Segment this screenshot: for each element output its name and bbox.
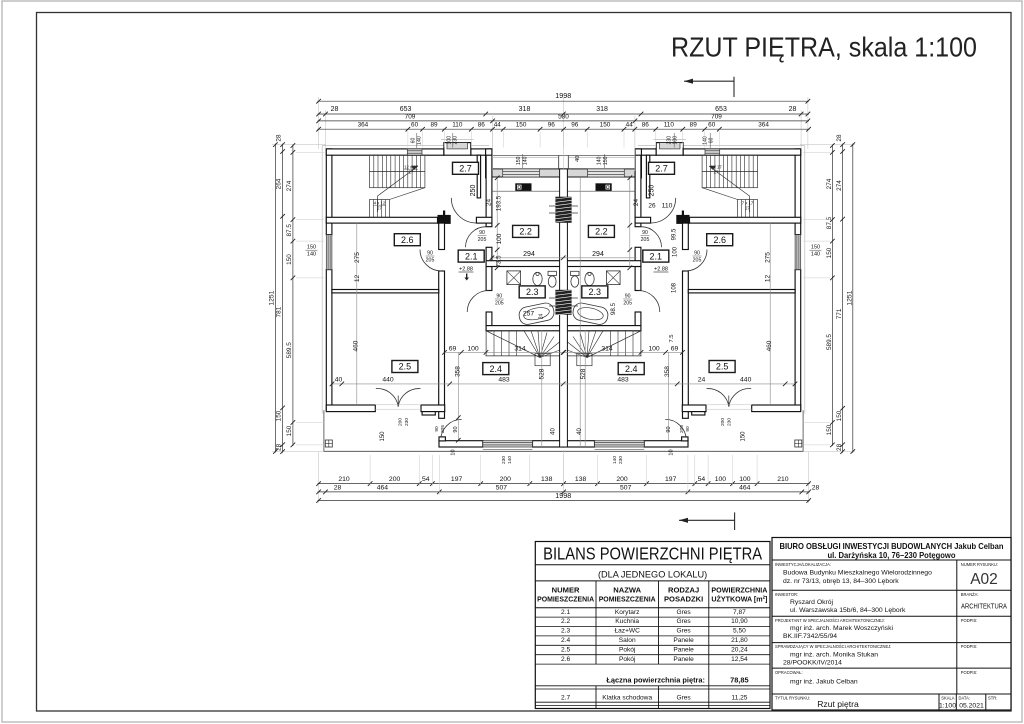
svg-text:05.2021: 05.2021 <box>959 703 984 710</box>
svg-text:2.3: 2.3 <box>526 287 539 297</box>
svg-text:11,25: 11,25 <box>731 694 747 701</box>
svg-text:150: 150 <box>603 156 609 165</box>
svg-text:87.5: 87.5 <box>286 224 293 237</box>
svg-text:ul. Darżyńska 10, 76–230 Potęg: ul. Darżyńska 10, 76–230 Potęgowo <box>828 551 956 560</box>
svg-text:709: 709 <box>711 113 722 120</box>
svg-text:POSADZKI: POSADZKI <box>664 595 703 604</box>
svg-text:BK.IIF.7342/55/94: BK.IIF.7342/55/94 <box>783 633 837 640</box>
svg-text:1:100: 1:100 <box>939 703 956 710</box>
svg-text:771: 771 <box>836 308 843 319</box>
svg-text:108: 108 <box>672 282 678 293</box>
svg-text:69: 69 <box>449 345 457 352</box>
svg-text:dz. nr 73/13, obręb 13, 84–300: dz. nr 73/13, obręb 13, 84–300 Lębork <box>783 578 899 585</box>
svg-text:Pokój: Pokój <box>619 656 636 663</box>
svg-text:24: 24 <box>698 377 706 384</box>
svg-text:2.3: 2.3 <box>589 287 602 297</box>
svg-text:5,50: 5,50 <box>733 628 746 635</box>
svg-text:21,80: 21,80 <box>731 637 748 644</box>
svg-text:230: 230 <box>666 136 672 145</box>
svg-text:90: 90 <box>625 294 631 300</box>
svg-text:Panele: Panele <box>673 637 694 644</box>
svg-text:mgr inż. arch. Monika Stukan: mgr inż. arch. Monika Stukan <box>790 651 878 658</box>
svg-text:274: 274 <box>826 178 833 189</box>
svg-text:Panele: Panele <box>673 656 694 663</box>
svg-text:90: 90 <box>479 230 485 236</box>
svg-text:24: 24 <box>538 314 544 320</box>
svg-text:60: 60 <box>410 138 416 144</box>
svg-text:Gres: Gres <box>676 694 691 701</box>
svg-text:RODZAJ: RODZAJ <box>668 586 699 595</box>
svg-text:364: 364 <box>758 121 769 128</box>
svg-text:24: 24 <box>633 199 640 207</box>
svg-text:2.4: 2.4 <box>625 364 638 374</box>
svg-text:460: 460 <box>766 340 773 351</box>
svg-text:709: 709 <box>405 113 416 120</box>
svg-text:275: 275 <box>354 252 361 263</box>
svg-text:2.5: 2.5 <box>716 362 729 372</box>
svg-text:73.5: 73.5 <box>496 255 503 268</box>
svg-text:90: 90 <box>642 230 648 236</box>
svg-text:2.5: 2.5 <box>399 362 412 372</box>
svg-text:2.1: 2.1 <box>650 251 663 261</box>
svg-text:507: 507 <box>496 484 508 491</box>
svg-text:Budowa Budynku Mieszkalnego Wi: Budowa Budynku Mieszkalnego Wielorodzinn… <box>783 570 932 577</box>
svg-text:2.1: 2.1 <box>561 609 570 616</box>
svg-text:150: 150 <box>286 254 293 265</box>
svg-text:96: 96 <box>571 121 579 128</box>
svg-text:90: 90 <box>434 426 440 432</box>
svg-text:OPRACOWAŁ:: OPRACOWAŁ: <box>775 670 803 675</box>
svg-text:90: 90 <box>453 426 459 432</box>
svg-text:Rzut piętra: Rzut piętra <box>817 699 859 709</box>
svg-text:200: 200 <box>500 476 512 483</box>
svg-text:140: 140 <box>612 456 618 464</box>
svg-text:205: 205 <box>440 425 446 433</box>
svg-text:110: 110 <box>662 203 673 210</box>
svg-text:100: 100 <box>673 246 679 257</box>
svg-text:27: 27 <box>409 169 414 174</box>
svg-text:2.1: 2.1 <box>465 251 478 261</box>
svg-text:275: 275 <box>765 252 772 263</box>
svg-text:Łaz+WC: Łaz+WC <box>614 628 640 635</box>
svg-text:274: 274 <box>286 180 293 191</box>
svg-text:69: 69 <box>671 345 679 352</box>
svg-text:507: 507 <box>620 484 632 491</box>
svg-text:Kuchnia: Kuchnia <box>615 618 639 625</box>
svg-text:99.5: 99.5 <box>672 228 678 240</box>
svg-text:205: 205 <box>426 257 435 263</box>
svg-text:UŻYTKOWA [m²]: UŻYTKOWA [m²] <box>711 595 767 604</box>
svg-text:150: 150 <box>836 410 843 421</box>
svg-text:54: 54 <box>698 476 706 483</box>
svg-text:28: 28 <box>789 106 797 113</box>
svg-text:12,54: 12,54 <box>731 656 748 663</box>
svg-text:26: 26 <box>648 203 656 210</box>
svg-text:1251: 1251 <box>846 290 853 305</box>
svg-text:100: 100 <box>739 476 751 483</box>
svg-text:+2.88: +2.88 <box>459 267 473 273</box>
svg-text:100: 100 <box>648 345 660 352</box>
svg-text:2.6: 2.6 <box>401 235 414 245</box>
svg-text:Gres: Gres <box>676 618 691 625</box>
svg-text:257: 257 <box>523 311 535 318</box>
svg-text:205: 205 <box>478 237 487 243</box>
svg-text:2.2: 2.2 <box>519 227 532 237</box>
svg-text:40: 40 <box>550 428 556 435</box>
svg-text:Łączna powierzchnia piętra:: Łączna powierzchnia piętra: <box>606 675 705 684</box>
svg-text:528: 528 <box>539 368 546 379</box>
svg-text:200: 200 <box>720 418 726 426</box>
svg-text:197: 197 <box>451 476 463 483</box>
svg-text:364: 364 <box>358 121 369 128</box>
svg-text:POMIESZCZENIA: POMIESZCZENIA <box>537 595 594 604</box>
svg-text:2.7: 2.7 <box>459 164 472 174</box>
svg-text:528: 528 <box>580 368 587 379</box>
svg-text:138: 138 <box>575 476 587 483</box>
svg-text:(DLA JEDNEGO LOKALU): (DLA JEDNEGO LOKALU) <box>598 570 707 580</box>
svg-text:Ryszard Okrój: Ryszard Okrój <box>790 599 834 606</box>
svg-text:10: 10 <box>451 449 457 455</box>
svg-text:150: 150 <box>286 425 293 436</box>
svg-text:483: 483 <box>498 377 510 384</box>
svg-text:250: 250 <box>470 185 477 197</box>
svg-text:ARCHITEKTURA: ARCHITEKTURA <box>961 604 1007 611</box>
svg-text:460: 460 <box>352 340 359 351</box>
svg-text:1251: 1251 <box>268 290 275 305</box>
svg-text:150: 150 <box>600 121 611 128</box>
svg-text:90: 90 <box>666 426 672 432</box>
svg-text:2.2: 2.2 <box>595 227 608 237</box>
svg-text:44: 44 <box>626 121 634 128</box>
svg-text:1998: 1998 <box>555 91 571 100</box>
svg-text:358: 358 <box>454 366 461 377</box>
svg-text:40: 40 <box>575 156 581 162</box>
svg-text:294: 294 <box>592 251 604 258</box>
svg-text:60: 60 <box>709 138 715 144</box>
svg-text:89: 89 <box>430 121 438 128</box>
svg-text:483: 483 <box>617 377 629 384</box>
svg-text:Pokój: Pokój <box>619 646 636 653</box>
svg-text:653: 653 <box>400 106 412 113</box>
svg-text:98.5: 98.5 <box>610 302 617 315</box>
svg-text:230: 230 <box>618 456 624 464</box>
svg-text:Klatka schodowa: Klatka schodowa <box>602 694 652 701</box>
svg-text:54: 54 <box>422 476 430 483</box>
svg-text:781: 781 <box>276 306 283 317</box>
svg-text:205: 205 <box>495 300 504 306</box>
svg-text:274: 274 <box>836 180 843 191</box>
svg-text:230: 230 <box>726 418 732 426</box>
svg-text:150: 150 <box>276 410 283 421</box>
svg-text:27: 27 <box>714 169 719 174</box>
svg-text:90: 90 <box>427 251 433 257</box>
svg-text:250: 250 <box>649 185 656 197</box>
svg-text:86: 86 <box>642 121 650 128</box>
svg-text:2.3: 2.3 <box>561 628 570 635</box>
svg-text:28: 28 <box>276 443 283 451</box>
svg-text:464: 464 <box>377 484 389 491</box>
svg-text:2.2: 2.2 <box>561 618 570 625</box>
svg-text:28: 28 <box>276 134 283 142</box>
svg-text:RZUT PIĘTRA, skala 1:100: RZUT PIĘTRA, skala 1:100 <box>671 32 977 63</box>
svg-text:TYTUŁ RYSUNKU:: TYTUŁ RYSUNKU: <box>775 696 810 701</box>
svg-text:7,87: 7,87 <box>733 609 746 616</box>
svg-text:150: 150 <box>826 247 833 258</box>
svg-text:2.7: 2.7 <box>655 164 668 174</box>
svg-text:Korytarz: Korytarz <box>615 609 640 616</box>
svg-text:589.5: 589.5 <box>286 342 293 358</box>
svg-text:87.5: 87.5 <box>826 216 833 229</box>
svg-text:28: 28 <box>836 134 843 142</box>
svg-text:44: 44 <box>494 121 502 128</box>
svg-text:230: 230 <box>404 418 410 426</box>
svg-text:2.6: 2.6 <box>561 656 570 663</box>
svg-text:BIURO OBSŁUGI INWESTYCJI BUDOW: BIURO OBSŁUGI INWESTYCJI BUDOWLANYCH Jak… <box>780 542 1004 551</box>
svg-text:440: 440 <box>382 377 394 384</box>
svg-text:140: 140 <box>522 156 528 165</box>
svg-text:60: 60 <box>411 121 419 128</box>
svg-text:140: 140 <box>507 456 513 464</box>
svg-text:SPRAWDZAJĄCY W SPECJALNOŚCI AR: SPRAWDZAJĄCY W SPECJALNOŚCI ARCHITEKTONI… <box>775 644 891 649</box>
svg-text:589.5: 589.5 <box>826 334 833 350</box>
svg-text:POMIESZCZENIA: POMIESZCZENIA <box>599 595 656 604</box>
svg-text:580: 580 <box>558 113 569 120</box>
svg-text:PODPIS:: PODPIS: <box>961 670 978 675</box>
svg-text:PROJEKTANT W SPECJALNOŚCI ARCH: PROJEKTANT W SPECJALNOŚCI ARCHITEKTONICZ… <box>775 618 885 623</box>
svg-text:205: 205 <box>623 300 632 306</box>
svg-text:12: 12 <box>354 275 361 283</box>
svg-text:230: 230 <box>453 136 459 145</box>
svg-text:464: 464 <box>739 484 751 491</box>
svg-text:12: 12 <box>765 275 772 283</box>
svg-text:210: 210 <box>777 476 789 483</box>
svg-text:230: 230 <box>501 456 507 464</box>
svg-text:100: 100 <box>673 136 679 145</box>
svg-text:205: 205 <box>679 425 685 433</box>
svg-text:+2.88: +2.88 <box>654 267 668 273</box>
svg-text:PODPIS:: PODPIS: <box>961 644 978 649</box>
svg-text:150: 150 <box>741 431 747 442</box>
svg-text:100: 100 <box>496 233 503 244</box>
svg-text:110: 110 <box>452 121 463 128</box>
svg-text:A02: A02 <box>970 571 998 588</box>
svg-text:264: 264 <box>276 178 283 189</box>
svg-text:150: 150 <box>307 245 316 251</box>
svg-text:140: 140 <box>417 136 423 145</box>
svg-text:140: 140 <box>811 251 820 257</box>
svg-text:150: 150 <box>516 156 522 165</box>
svg-text:INWESTYCJA/LOKALIZACJA:: INWESTYCJA/LOKALIZACJA: <box>775 562 831 567</box>
svg-text:2.6: 2.6 <box>713 235 726 245</box>
svg-text:27: 27 <box>377 205 382 210</box>
svg-text:40: 40 <box>577 428 583 435</box>
svg-text:BRANŻA:: BRANŻA: <box>961 592 979 597</box>
svg-text:NAZWA: NAZWA <box>613 586 641 595</box>
svg-text:314: 314 <box>601 345 613 352</box>
svg-text:314: 314 <box>514 345 526 352</box>
svg-text:mgr inż. Jakub Celban: mgr inż. Jakub Celban <box>790 679 858 686</box>
svg-text:150: 150 <box>811 245 820 251</box>
svg-text:358: 358 <box>664 366 671 377</box>
svg-text:1998: 1998 <box>555 491 571 500</box>
svg-text:Gres: Gres <box>676 609 691 616</box>
svg-text:2.5: 2.5 <box>561 646 570 653</box>
svg-text:24: 24 <box>485 199 492 207</box>
svg-text:86: 86 <box>478 121 486 128</box>
svg-text:90: 90 <box>685 426 691 432</box>
svg-text:10: 10 <box>669 449 675 455</box>
svg-text:100: 100 <box>446 136 452 145</box>
svg-text:27: 27 <box>745 205 750 210</box>
svg-text:90: 90 <box>496 294 502 300</box>
svg-text:150: 150 <box>380 431 386 442</box>
svg-text:28: 28 <box>812 484 820 491</box>
svg-text:28: 28 <box>836 443 843 451</box>
svg-text:140: 140 <box>597 156 603 165</box>
svg-text:28/POOKK/IV/2014: 28/POOKK/IV/2014 <box>783 660 842 667</box>
svg-text:NUMER: NUMER <box>552 586 580 595</box>
svg-text:Salon: Salon <box>619 637 636 644</box>
svg-text:210: 210 <box>338 476 350 483</box>
svg-text:150: 150 <box>826 424 833 435</box>
svg-text:193.5: 193.5 <box>496 195 503 211</box>
svg-text:100: 100 <box>715 476 727 483</box>
svg-text:200: 200 <box>389 476 401 483</box>
svg-text:20,24: 20,24 <box>731 646 748 653</box>
svg-text:2.4: 2.4 <box>490 364 503 374</box>
svg-text:205: 205 <box>641 237 650 243</box>
svg-text:78,85: 78,85 <box>730 675 749 684</box>
svg-text:197: 197 <box>665 476 677 483</box>
svg-text:28: 28 <box>334 484 342 491</box>
svg-text:60: 60 <box>708 121 716 128</box>
svg-text:653: 653 <box>715 106 727 113</box>
svg-text:318: 318 <box>519 106 531 113</box>
svg-text:2.4: 2.4 <box>561 637 570 644</box>
svg-text:90: 90 <box>694 251 700 257</box>
svg-text:140: 140 <box>307 251 316 257</box>
svg-text:205: 205 <box>693 257 702 263</box>
svg-text:110: 110 <box>664 121 675 128</box>
svg-text:96: 96 <box>548 121 556 128</box>
svg-text:440: 440 <box>740 377 752 384</box>
svg-text:10,90: 10,90 <box>731 618 748 625</box>
svg-text:100: 100 <box>467 345 479 352</box>
svg-text:294: 294 <box>523 251 535 258</box>
svg-text:DATA:: DATA: <box>959 696 970 701</box>
svg-text:140: 140 <box>702 136 708 145</box>
svg-text:40: 40 <box>335 377 343 384</box>
svg-text:200: 200 <box>398 418 404 426</box>
svg-text:NUMER RYSUNKU:: NUMER RYSUNKU: <box>961 562 998 567</box>
svg-text:INWESTOR:: INWESTOR: <box>775 592 798 597</box>
svg-text:89: 89 <box>690 121 698 128</box>
svg-text:200: 200 <box>616 476 628 483</box>
svg-text:Panele: Panele <box>673 646 694 653</box>
svg-text:mgr inż. arch. Marek Woszczyńs: mgr inż. arch. Marek Woszczyński <box>790 625 893 632</box>
svg-text:STR:: STR: <box>988 696 997 701</box>
svg-text:POWIERZCHNIA: POWIERZCHNIA <box>711 586 767 595</box>
svg-text:PODPIS:: PODPIS: <box>961 618 978 623</box>
svg-text:BILANS POWIERZCHNI PIĘTRA: BILANS POWIERZCHNI PIĘTRA <box>543 544 762 564</box>
svg-text:Gres: Gres <box>676 628 691 635</box>
svg-text:SKALA: SKALA <box>941 696 954 701</box>
svg-text:150: 150 <box>516 121 527 128</box>
svg-text:7.5: 7.5 <box>669 334 675 342</box>
svg-text:318: 318 <box>596 106 608 113</box>
svg-text:ul. Warszawska 15b/6, 84–300 L: ul. Warszawska 15b/6, 84–300 Lębork <box>790 607 906 614</box>
svg-text:138: 138 <box>541 476 553 483</box>
svg-text:28: 28 <box>331 106 339 113</box>
svg-text:2.7: 2.7 <box>561 694 570 701</box>
